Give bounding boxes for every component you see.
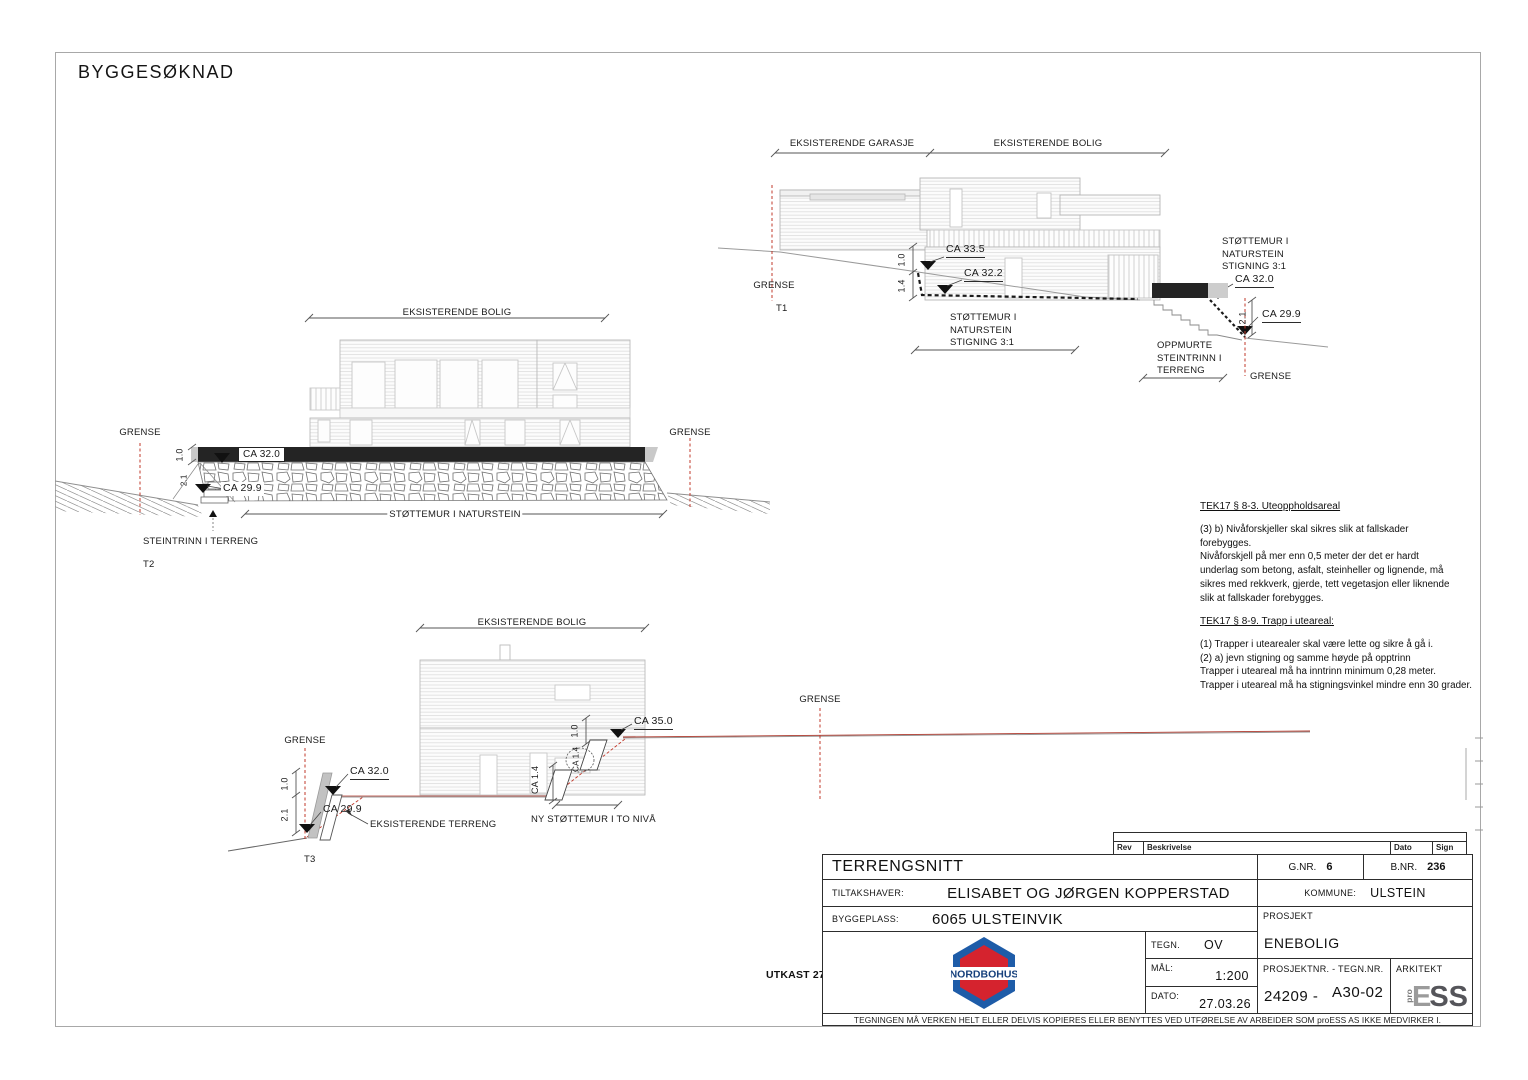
t3-section-label: T3 — [304, 854, 316, 867]
tiltakshaver-label: TILTAKSHAVER: — [832, 888, 920, 898]
t1-grense-left-label: GRENSE — [753, 280, 794, 293]
t1-dim-label-garasje: EKSISTERENDE GARASJE — [790, 138, 914, 151]
rev-col-header: Rev — [1113, 841, 1144, 855]
dato-cell: DATO: 27.03.26 — [1145, 986, 1258, 1014]
t3-dim-label-bolig: EKSISTERENDE BOLIG — [478, 617, 587, 630]
section-t1: EKSISTERENDE GARASJE EKSISTERENDE BOLIG … — [718, 133, 1330, 403]
t3-grense-left-label: GRENSE — [284, 735, 325, 748]
t2-dim-label-bolig: EKSISTERENDE BOLIG — [403, 307, 512, 320]
prosjekt-cell: PROSJEKT ENEBOLIG — [1257, 906, 1473, 959]
section-t2: EKSISTERENDE BOLIG GRENSE GRENSE 1.0 2.1… — [55, 303, 770, 578]
note-tek17-8-9: TEK17 § 8-9. Trapp i uteareal: (1) Trapp… — [1200, 615, 1478, 693]
t1-grense-right-label: GRENSE — [1250, 371, 1291, 384]
t1-stairs — [1154, 300, 1242, 340]
prosjektnr-label: PROSJEKTNR. - TEGN.NR. — [1263, 964, 1383, 974]
gnr-label: G.NR. — [1289, 862, 1317, 873]
t2-ca299-label: CA 29.9 — [221, 482, 264, 496]
note-tek17-8-3-body: (3) b) Nivåforskjeller skal sikres slik … — [1200, 524, 1449, 604]
dato-value: 27.03.26 — [1199, 997, 1251, 1011]
kommune-value: ULSTEIN — [1370, 886, 1426, 900]
gnr-cell: G.NR. 6 — [1257, 854, 1364, 880]
t2-stottemur-label: STØTTEMUR I NATURSTEIN — [387, 509, 522, 522]
byggeplass-cell: BYGGEPLASS: 6065 ULSTEINVIK — [822, 906, 1258, 932]
page-title: BYGGESØKNAD — [78, 62, 235, 83]
proess-pro-text: pro — [1404, 989, 1414, 1003]
t1-ca322-label: CA 32.2 — [964, 267, 1003, 282]
t1-dim-21-label: 2.1 — [1238, 311, 1250, 324]
t1-stottemur-right-label: STØTTEMUR I NATURSTEIN STIGNING 3:1 — [1222, 236, 1289, 274]
beskrivelse-label: Beskrivelse — [1144, 842, 1390, 853]
tegn-cell: TEGN. OV — [1145, 931, 1258, 959]
t2-terrain-hatch-right — [667, 493, 770, 514]
tegn-value: OV — [1204, 938, 1223, 952]
t2-wall-cap-right — [645, 447, 658, 462]
t1-dim-10-label: 1.0 — [897, 253, 909, 266]
t1-section-label: T1 — [776, 303, 788, 316]
t3-dim-line-bottom — [552, 801, 622, 809]
kommune-cell: KOMMUNE: ULSTEIN — [1257, 879, 1473, 907]
t3-grense-right-label: GRENSE — [799, 694, 840, 707]
prosjektnr-value: 24209 - — [1264, 988, 1318, 1005]
t3-ca14-label: CA 1.4 — [530, 766, 542, 794]
gnr-value: 6 — [1326, 861, 1332, 873]
bnr-cell: B.NR. 236 — [1363, 854, 1473, 880]
t3-ca14-cloud-label: CA 1.4 — [571, 747, 582, 772]
disclaimer-cell: TEGNINGEN MÅ VERKEN HELT ELLER DELVIS KO… — [822, 1013, 1473, 1026]
rev-label: Rev — [1114, 842, 1143, 853]
bnr-label: B.NR. — [1390, 862, 1417, 873]
t2-terrain-hatch-left — [55, 481, 203, 517]
t3-plateau-top-red — [623, 731, 1310, 737]
t2-house — [310, 340, 630, 447]
t1-stottemur-mid-label: STØTTEMUR I NATURSTEIN STIGNING 3:1 — [950, 312, 1017, 350]
prosjekt-value: ENEBOLIG — [1264, 935, 1340, 951]
note-tek17-8-3-heading: TEK17 § 8-3. Uteoppholdsareal — [1200, 500, 1340, 514]
byggeplass-value: 6065 ULSTEINVIK — [932, 911, 1063, 928]
t3-dim-21-label: 2.1 — [280, 808, 292, 821]
proess-logo: pro E SS — [1402, 986, 1468, 1009]
t3-ca320-label: CA 32.0 — [350, 765, 389, 780]
t3-terrain-left — [228, 838, 307, 851]
t2-grense-left-label: GRENSE — [119, 427, 160, 440]
drawing-title-cell: TERRENGSNITT — [822, 854, 1258, 880]
t2-dim-21-label: 2.1 — [180, 474, 191, 486]
sign-col-label: Sign — [1433, 842, 1466, 853]
note-tek17-8-3: TEK17 § 8-3. Uteoppholdsareal (3) b) Niv… — [1200, 500, 1478, 605]
byggeplass-label: BYGGEPLASS: — [832, 914, 920, 924]
mal-value: 1:200 — [1215, 969, 1249, 983]
t1-terrain-line-right — [1245, 338, 1328, 347]
note-tek17-8-9-body: (1) Trapper i utearealer skal være lette… — [1200, 639, 1472, 691]
t1-wall-cap — [1208, 283, 1228, 298]
tegn-label: TEGN. — [1151, 940, 1180, 950]
t2-dim-10-label: 1.0 — [175, 448, 187, 461]
arkitekt-cell: ARKITEKT pro E SS — [1390, 958, 1473, 1014]
t2-section-label: T2 — [143, 559, 155, 572]
t3-dim-10-mid-label: 1.0 — [570, 724, 582, 737]
arkitekt-label: ARKITEKT — [1396, 964, 1442, 974]
prosjekt-label: PROSJEKT — [1263, 911, 1313, 921]
t3-ny-stottemur-label: NY STØTTEMUR I TO NIVÅ — [531, 814, 656, 827]
t1-ca335-label: CA 33.5 — [946, 243, 985, 258]
t1-oppmurte-label: OPPMURTE STEINTRINN I TERRENG — [1157, 340, 1222, 378]
dato-col-header: Dato — [1390, 841, 1433, 855]
t1-dim-label-bolig: EKSISTERENDE BOLIG — [994, 138, 1103, 151]
kommune-label: KOMMUNE: — [1304, 888, 1356, 898]
t2-grense-right-label: GRENSE — [669, 427, 710, 440]
t1-dim-14-label: 1.4 — [897, 279, 909, 292]
title-block: Rev Beskrivelse Dato Sign TERRENGSNITT G… — [822, 832, 1475, 1026]
tiltakshaver-value: ELISABET OG JØRGEN KOPPERSTAD — [920, 885, 1257, 902]
nordbohus-logo-text: NORDBOHUS — [951, 969, 1017, 981]
bnr-value: 236 — [1427, 861, 1445, 873]
note-tek17-8-9-heading: TEK17 § 8-9. Trapp i uteareal: — [1200, 615, 1334, 629]
t3-dim-10-label: 1.0 — [280, 777, 292, 790]
t1-retaining-wall — [1152, 283, 1208, 298]
border-ticks — [1462, 730, 1490, 842]
t1-ca299-label: CA 29.9 — [1262, 308, 1301, 323]
t2-stone-wall — [198, 462, 667, 501]
t3-eksisterende-terreng-label: EKSISTERENDE TERRENG — [370, 819, 496, 832]
beskrivelse-col-header: Beskrivelse — [1143, 841, 1391, 855]
dato-label: DATO: — [1151, 991, 1179, 1001]
sign-col-header: Sign — [1432, 841, 1467, 855]
t2-ca320-label: CA 32.0 — [238, 447, 285, 462]
mal-cell: MÅL: 1:200 — [1145, 958, 1258, 987]
logo-cell: NORDBOHUS — [822, 931, 1146, 1014]
nordbohus-logo: NORDBOHUS — [951, 936, 1017, 1010]
tiltakshaver-cell: TILTAKSHAVER: ELISABET OG JØRGEN KOPPERS… — [822, 879, 1258, 907]
dato-col-label: Dato — [1391, 842, 1432, 853]
t3-dim-vertical-left — [292, 768, 300, 836]
t2-steintrinn-label: STEINTRINN I TERRENG — [143, 536, 258, 549]
proess-ss-text: SS — [1429, 986, 1468, 1009]
t3-ca350-label: CA 35.0 — [634, 715, 673, 730]
t3-ca299-label: CA 29.9 — [323, 803, 362, 817]
mal-label: MÅL: — [1151, 963, 1173, 973]
tegnnr-value: A30-02 — [1332, 984, 1383, 1001]
t1-ca320-label: CA 32.0 — [1235, 273, 1274, 288]
prosjektnr-cell: PROSJEKTNR. - TEGN.NR. 24209 - A30-02 — [1257, 958, 1391, 1014]
t3-plateau-top — [623, 732, 1310, 738]
disclaimer-text: TEGNINGEN MÅ VERKEN HELT ELLER DELVIS KO… — [854, 1015, 1441, 1025]
drawing-title: TERRENGSNITT — [832, 858, 964, 876]
